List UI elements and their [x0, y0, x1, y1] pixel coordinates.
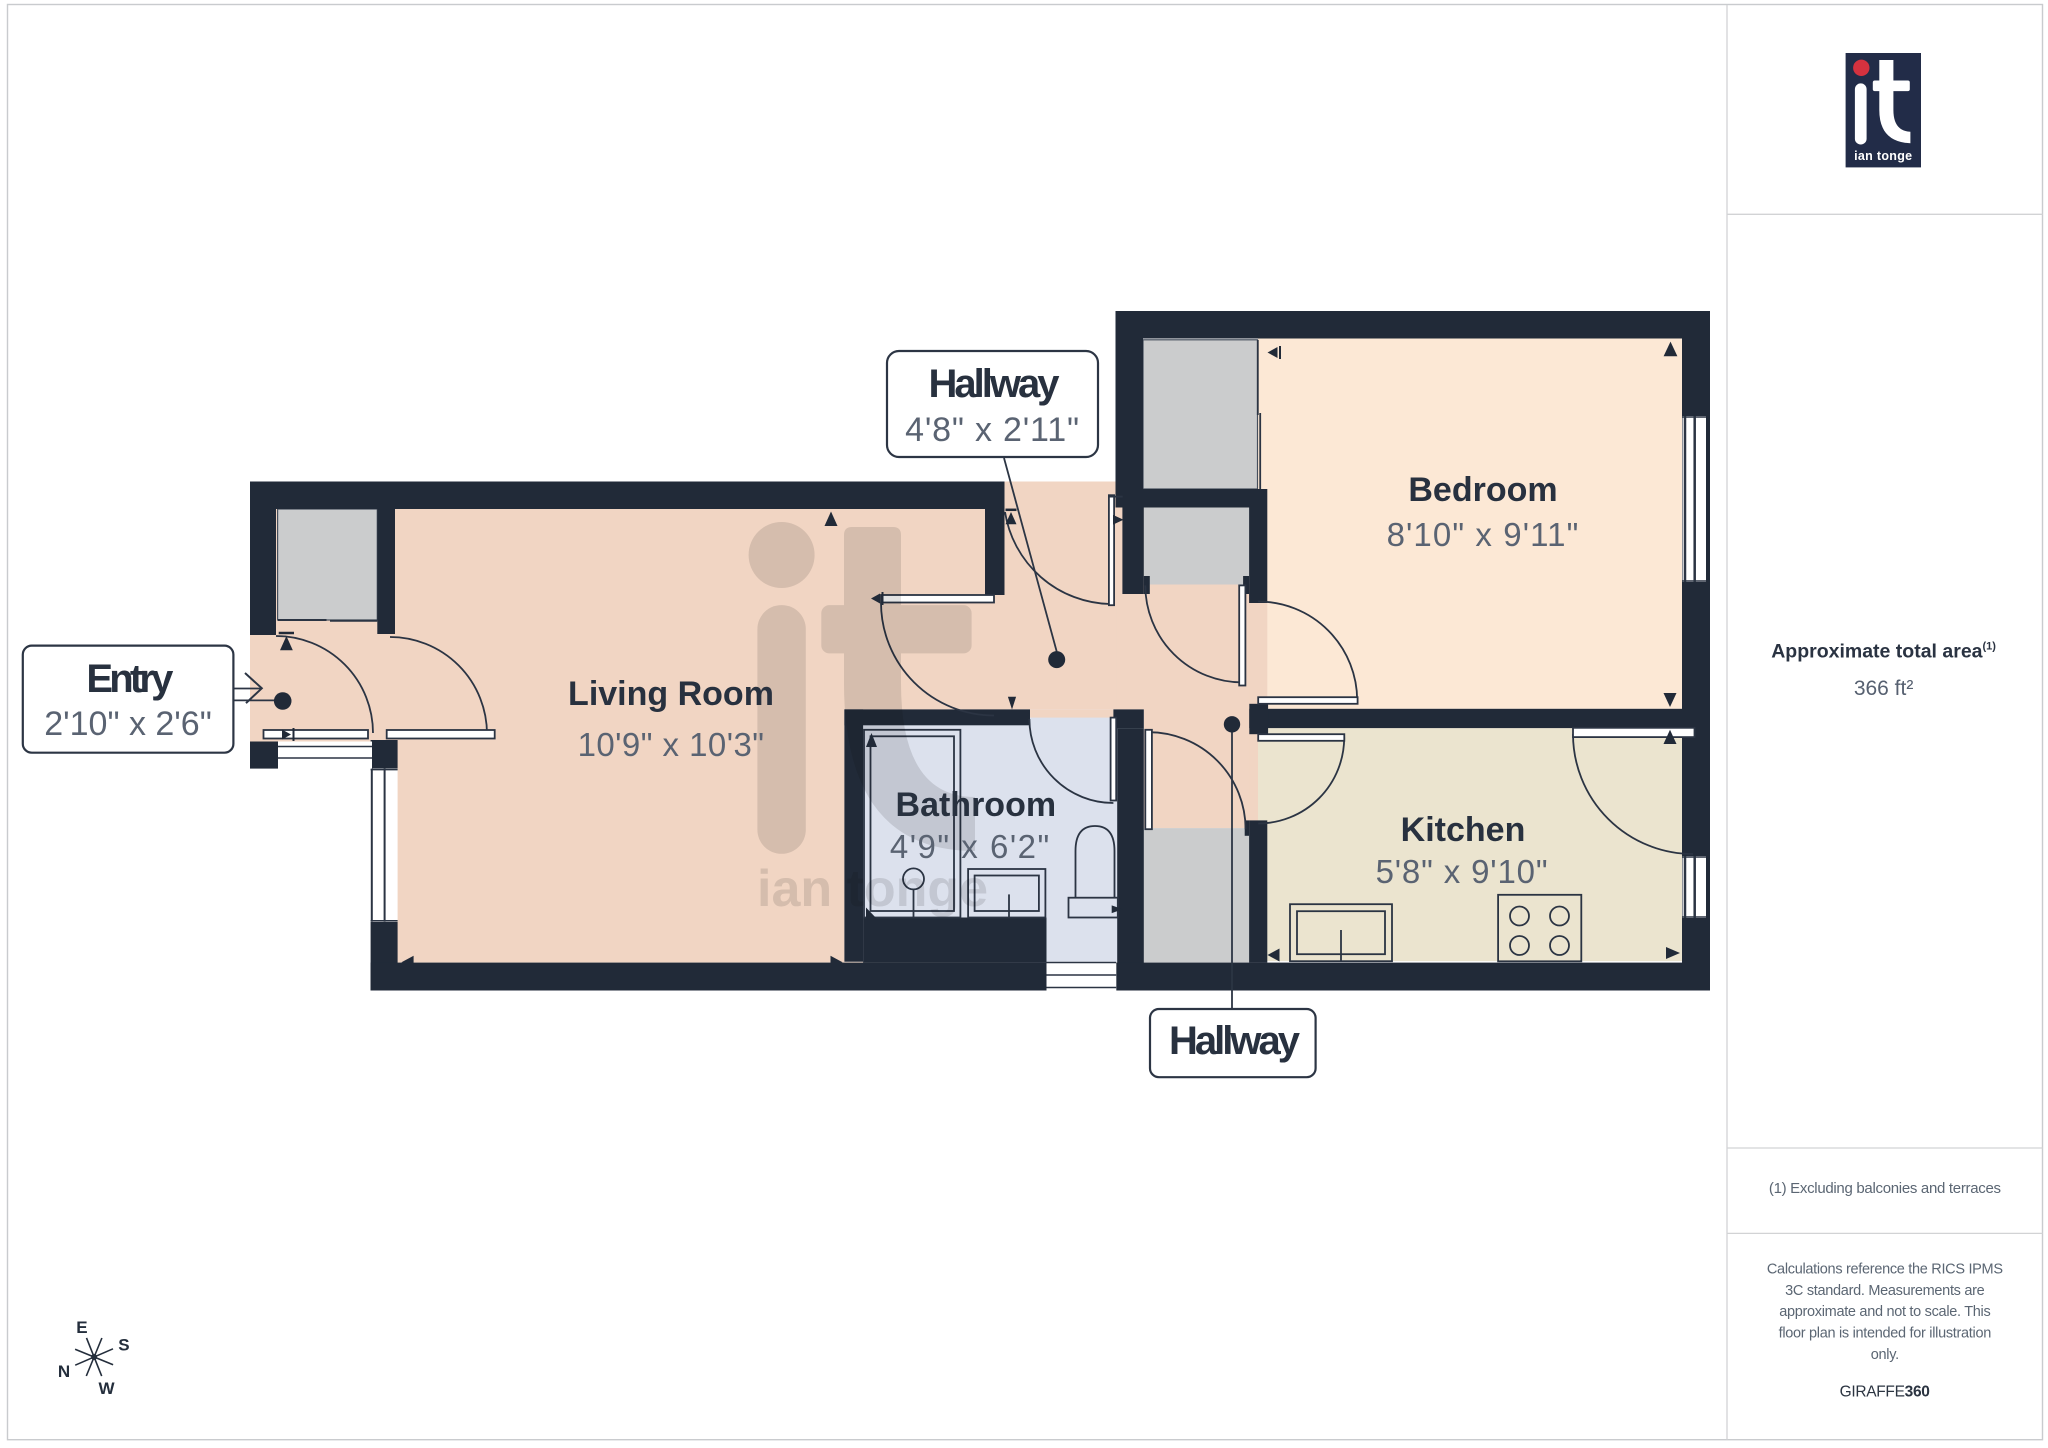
- svg-text:4'8" x 2'11": 4'8" x 2'11": [905, 411, 1080, 449]
- svg-text:S: S: [118, 1336, 129, 1355]
- svg-text:10'9" x 10'3": 10'9" x 10'3": [578, 726, 765, 763]
- svg-text:W: W: [98, 1379, 115, 1398]
- svg-text:only.: only.: [1871, 1347, 1899, 1363]
- svg-text:5'8" x 9'10": 5'8" x 9'10": [1376, 853, 1549, 890]
- svg-text:3C standard. Measurements are: 3C standard. Measurements are: [1785, 1283, 1984, 1299]
- svg-text:Hallway: Hallway: [1169, 1019, 1301, 1063]
- svg-text:ian tonge: ian tonge: [1854, 149, 1912, 163]
- svg-text:4'9" x 6'2": 4'9" x 6'2": [890, 828, 1051, 865]
- svg-text:Calculations reference the RIC: Calculations reference the RICS IPMS: [1767, 1262, 2003, 1278]
- svg-text:Living Room: Living Room: [568, 675, 774, 713]
- svg-text:N: N: [58, 1362, 70, 1381]
- svg-text:GIRAFFE360: GIRAFFE360: [1840, 1384, 1930, 1401]
- svg-text:(1) Excluding balconies and te: (1) Excluding balconies and terraces: [1769, 1180, 2001, 1197]
- svg-text:Bathroom: Bathroom: [896, 786, 1057, 824]
- svg-text:Approximate total area(1): Approximate total area(1): [1771, 641, 1996, 663]
- svg-text:Kitchen: Kitchen: [1401, 811, 1526, 849]
- svg-text:Hallway: Hallway: [929, 362, 1061, 406]
- svg-text:E: E: [76, 1318, 87, 1337]
- svg-text:366 ft²: 366 ft²: [1854, 677, 1914, 700]
- svg-text:2'10" x 2'6": 2'10" x 2'6": [44, 705, 212, 743]
- svg-text:floor plan is intended for ill: floor plan is intended for illustration: [1779, 1326, 1992, 1342]
- svg-text:Entry: Entry: [86, 657, 174, 701]
- svg-text:8'10" x 9'11": 8'10" x 9'11": [1387, 516, 1580, 553]
- svg-text:approximate and not to scale.: approximate and not to scale. This: [1779, 1304, 1990, 1320]
- svg-text:ian tonge: ian tonge: [757, 860, 988, 918]
- svg-text:Bedroom: Bedroom: [1408, 471, 1557, 509]
